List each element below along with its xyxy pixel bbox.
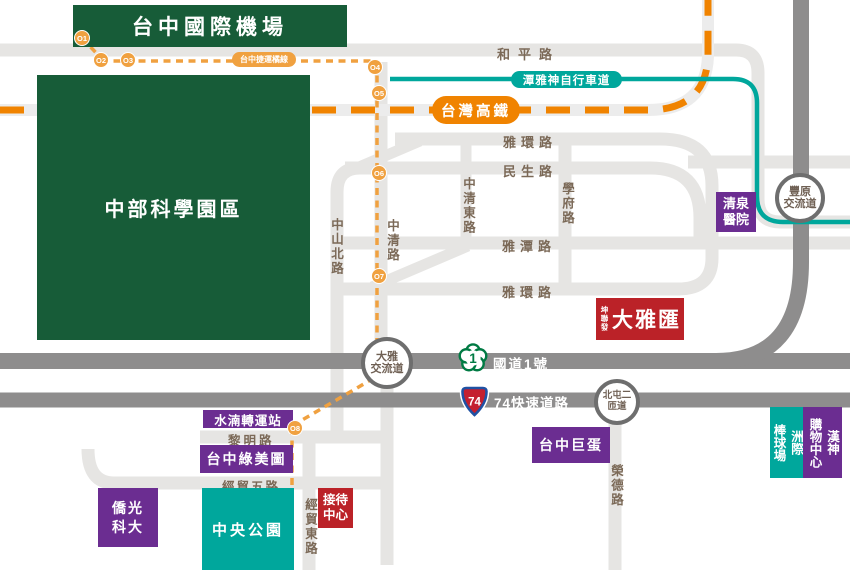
central-park-box: 中央公園 <box>202 488 294 570</box>
mrt-stop-o3: O3 <box>120 52 136 68</box>
project-name: 大雅匯 <box>612 304 681 334</box>
road-label-rongde: 榮德路 <box>607 464 626 508</box>
mrt-line-label: 台中捷運橘線 <box>232 52 296 67</box>
road-label-yahuan-north: 雅環路 <box>503 132 557 151</box>
mrt-stop-o5: O5 <box>371 85 387 101</box>
airport-box: 台中國際機場 <box>73 5 347 47</box>
road-label-heping: 和平路 <box>497 44 560 63</box>
national1-shield-icon: 1 <box>457 342 489 379</box>
road-label-zhongqing-east: 中清東路 <box>459 177 478 235</box>
road-label-xuefu: 學府路 <box>558 182 577 226</box>
mrt-stop-o8: O8 <box>287 420 303 436</box>
national1-shield-number: 1 <box>469 351 477 366</box>
mrt-stop-o1: O1 <box>74 30 90 46</box>
interchange-fengyuan: 豐原 交流道 <box>775 173 825 223</box>
road-label-yatan: 雅潭路 <box>502 236 556 255</box>
hsr-label: 台灣高鐵 <box>432 96 520 124</box>
road-label-minsheng: 民生路 <box>503 161 557 180</box>
national1-label: 國道1號 <box>493 353 549 373</box>
dome-box: 台中巨蛋 <box>532 427 610 463</box>
mrt-stop-o2: O2 <box>93 52 109 68</box>
baseball-stadium-box: 洲際 棒球場 <box>770 407 803 478</box>
ramp-beitun2: 北屯二 匝道 <box>594 379 640 425</box>
road-label-zhongqing: 中清路 <box>383 219 402 263</box>
mrt-stop-o6: O6 <box>371 165 387 181</box>
road-label-yahuan-south: 雅環路 <box>502 282 556 301</box>
project-brand: 坤聯發 <box>599 306 610 332</box>
green-museum-box: 台中綠美圖 <box>200 445 293 473</box>
reception-center-box: 接待 中心 <box>318 488 353 528</box>
transfer-station-box: 水湳轉運站 <box>203 410 293 428</box>
mrt-stop-o7: O7 <box>371 268 387 284</box>
hospital-box: 清泉 醫院 <box>716 192 756 232</box>
science-park-box: 中部科學園區 <box>37 75 310 340</box>
road-label-zhongshan-north: 中山北路 <box>327 218 346 276</box>
expressway74-shield-number: 74 <box>468 396 481 408</box>
mall-box: 漢神 購物中心 <box>803 407 842 478</box>
expressway74-shield-icon: 74 <box>458 385 491 423</box>
interchange-daya: 大雅 交流道 <box>361 337 413 389</box>
project-box-dayahui: 坤聯發 大雅匯 <box>596 298 684 340</box>
university-box: 僑光 科大 <box>98 488 158 547</box>
expressway74-label: 74快速道路 <box>494 392 569 412</box>
mrt-stop-o4: O4 <box>367 59 383 75</box>
bike-path-label: 潭雅神自行車道 <box>511 71 622 88</box>
map-canvas: 和平路 雅環路 民生路 雅潭路 雅環路 黎明路 經貿五路 中山北路 中清路 中清… <box>0 0 850 570</box>
